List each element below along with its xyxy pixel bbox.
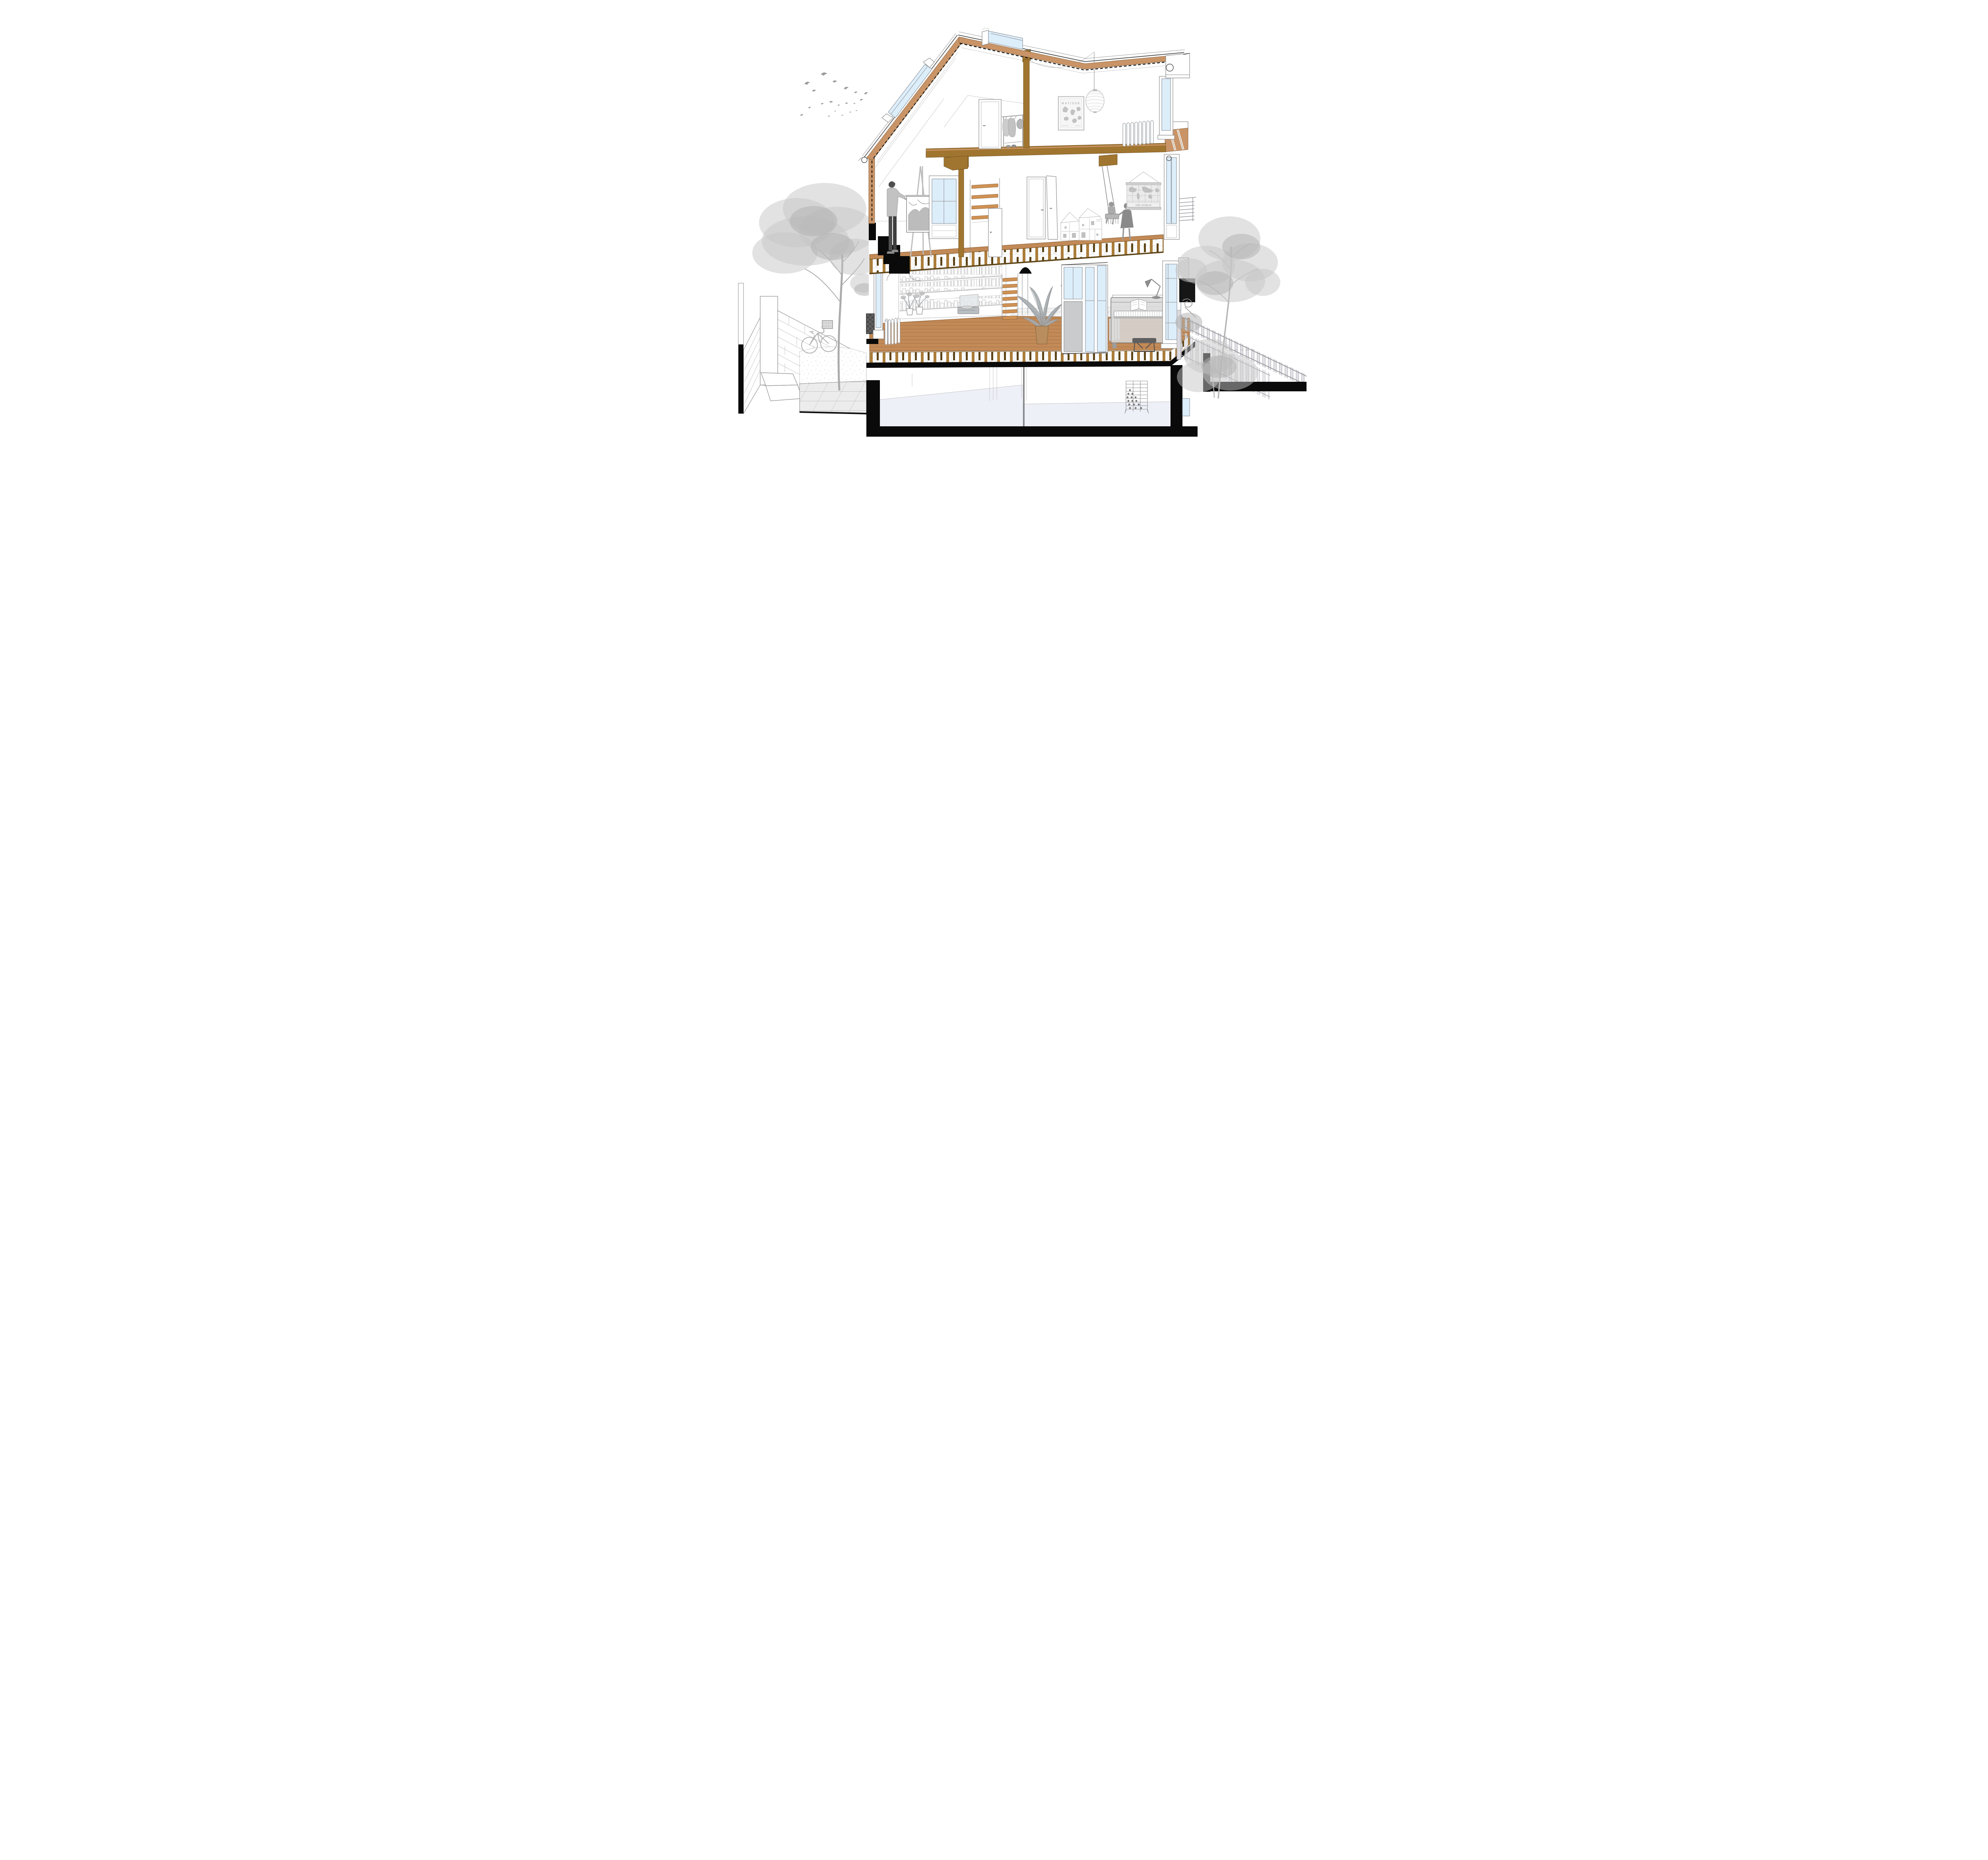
gate-pier — [760, 296, 778, 385]
illustration-canvas: THE WORLD — [666, 0, 1323, 465]
attic-door — [979, 99, 1001, 149]
left-eave-gutter — [858, 157, 867, 163]
swing-bracket — [1099, 154, 1117, 166]
poster-title: MATISSE — [1062, 102, 1081, 105]
tall-window-middle — [929, 176, 959, 239]
piano-keyboard — [1114, 311, 1166, 317]
record-player — [958, 294, 979, 314]
timber-post-attic — [1023, 49, 1031, 148]
foundation-slab — [866, 426, 1198, 437]
flock-of-birds — [800, 72, 868, 117]
gravel-bed — [800, 347, 866, 384]
matisse-poster: MATISSE — [1058, 97, 1084, 130]
hallway-door-open — [1046, 176, 1058, 239]
tiled-path — [800, 381, 866, 414]
black-retaining-wall-left — [738, 344, 744, 414]
attic-right-window — [1158, 76, 1175, 139]
right-eave — [1166, 53, 1190, 78]
glazed-interior-partition — [1062, 262, 1108, 354]
radiator-ground-left — [885, 317, 900, 345]
front-yard-left — [738, 183, 880, 414]
map-title: THE WORLD — [1135, 204, 1151, 207]
glazed-door-right-middle — [1164, 154, 1179, 239]
garden-right — [1175, 216, 1307, 400]
hallway-door-closed — [1027, 177, 1045, 239]
left-window-ground — [876, 268, 881, 328]
basement-window-right — [1182, 398, 1190, 416]
house-section: THE WORLD — [858, 28, 1198, 437]
